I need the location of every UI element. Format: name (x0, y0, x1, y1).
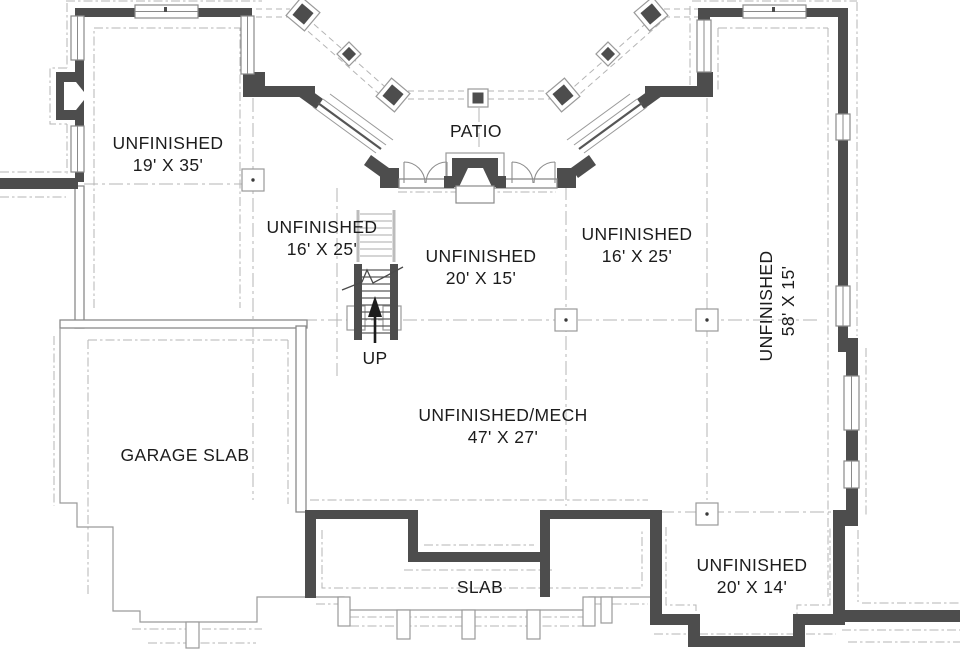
patio-column (337, 42, 361, 66)
room-label: UNFINISHED (756, 251, 776, 362)
patio-column (596, 42, 620, 66)
window-frame (567, 94, 647, 153)
room-dims: 16' X 25' (287, 239, 358, 259)
hearth (456, 186, 494, 203)
room-dims: 47' X 27' (468, 427, 539, 447)
patio-column (376, 78, 410, 112)
porch-post-footing (397, 610, 410, 639)
fireplace-wing (444, 176, 454, 188)
patio-columns (286, 0, 668, 112)
patio-column (634, 0, 668, 31)
wall-bottom (540, 510, 662, 519)
porch-post-footing (527, 610, 540, 639)
wall-thin-garage-top (60, 320, 307, 328)
room-label: UNFINISHED (582, 224, 693, 244)
porch-post-footing (583, 597, 595, 626)
wall-right (846, 428, 858, 463)
stairs-label: UP (362, 348, 387, 368)
wall-recess (408, 552, 550, 562)
wall-recess (540, 510, 550, 597)
footing-line (857, 2, 866, 602)
room-dims: 19' X 35' (133, 155, 204, 175)
window (71, 126, 84, 172)
wall-jog (833, 510, 858, 526)
wall-bottom-step (793, 614, 845, 625)
window (836, 286, 850, 326)
window-glass (318, 103, 381, 149)
room-label: PATIO (450, 121, 502, 141)
retaining-wall-left (0, 178, 78, 189)
garage-slab-outline (60, 328, 305, 622)
stair-stringer (390, 264, 398, 340)
wall-right (846, 486, 858, 514)
stair-stringer (354, 264, 362, 340)
room-dims: 20' X 14' (717, 577, 788, 597)
basement-floor-plan: UNFINISHED 19' X 35' PATIO UNFINISHED 16… (0, 0, 960, 651)
footing-line (316, 604, 648, 626)
window (71, 16, 84, 60)
patio-column (468, 89, 488, 107)
porch-post-footing (338, 597, 350, 626)
slab-outlines (60, 328, 650, 648)
room-label: UNFINISHED/MECH (418, 405, 587, 425)
wall-bottom-step (688, 636, 805, 647)
window (844, 461, 859, 488)
window-frame (313, 94, 393, 153)
wall-right (838, 136, 848, 288)
wall-bottom (305, 510, 418, 519)
room-label: UNFINISHED (697, 555, 808, 575)
retaining-wall-right (840, 610, 960, 622)
floor-plan-page: UNFINISHED 19' X 35' PATIO UNFINISHED 16… (0, 0, 960, 651)
wall-thin-garage-party (296, 326, 306, 512)
fireplace-wing (496, 176, 506, 188)
porch-side-wall (650, 510, 662, 624)
room-dims: 20' X 15' (446, 268, 517, 288)
window-glass (579, 103, 642, 149)
wall-right (838, 8, 848, 118)
porch-side-wall (305, 510, 316, 598)
wall-segment (698, 70, 710, 96)
porch-post-footing (186, 622, 199, 648)
patio-column (546, 78, 580, 112)
left-fireplace (56, 72, 84, 120)
window (844, 376, 859, 430)
patio-fireplace (444, 153, 506, 203)
patio-edge-lines (256, 9, 698, 100)
patio-column (286, 0, 320, 31)
porch-post-footing (601, 597, 612, 623)
column-pad (555, 309, 577, 331)
window (697, 20, 711, 72)
room-label: SLAB (457, 577, 503, 597)
column-pad (242, 169, 264, 191)
room-label: UNFINISHED (267, 217, 378, 237)
room-dims: 16' X 25' (602, 246, 673, 266)
window (743, 5, 806, 18)
wall-jog (838, 338, 858, 352)
window (241, 16, 254, 74)
window (135, 5, 198, 18)
footing-line (842, 603, 960, 642)
window (836, 114, 850, 140)
patio-edge (256, 9, 698, 17)
wall-thin-left (75, 186, 84, 328)
porch-post-footing (462, 610, 475, 639)
column-pad (696, 309, 718, 331)
room-label: UNFINISHED (426, 246, 537, 266)
room-label: GARAGE SLAB (121, 445, 250, 465)
room-dims: 58' X 15' (778, 266, 798, 337)
column-pad (696, 503, 718, 525)
wall-right (833, 524, 845, 620)
room-label: UNFINISHED (113, 133, 224, 153)
wall-corner (380, 168, 399, 188)
